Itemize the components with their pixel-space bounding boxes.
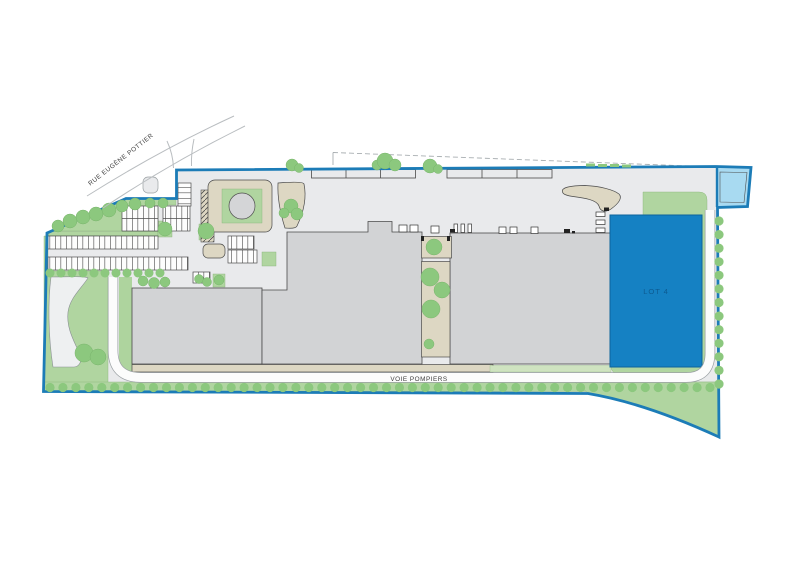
green-island	[262, 252, 276, 266]
bush	[714, 298, 723, 307]
bush	[421, 383, 430, 392]
bush	[524, 383, 533, 392]
bush	[714, 284, 723, 293]
bush	[680, 383, 689, 392]
bush	[628, 383, 637, 392]
bush	[550, 383, 559, 392]
bush	[134, 269, 143, 278]
bush	[136, 383, 145, 392]
bush	[145, 269, 154, 278]
bush	[576, 383, 585, 392]
bush	[278, 383, 287, 392]
bush	[343, 383, 352, 392]
bush	[330, 383, 339, 392]
bush	[641, 383, 650, 392]
tank-pad-foot	[203, 244, 225, 258]
bush	[714, 230, 723, 239]
bush	[511, 383, 520, 392]
bush	[714, 312, 723, 321]
bush	[408, 383, 417, 392]
bush	[369, 383, 378, 392]
bush	[57, 269, 66, 278]
bush	[714, 339, 723, 348]
bush	[714, 271, 723, 280]
bush	[434, 383, 443, 392]
bush	[240, 383, 249, 392]
bush	[84, 383, 93, 392]
bush	[253, 383, 262, 392]
bush	[45, 383, 54, 392]
bush	[356, 383, 365, 392]
bush	[110, 383, 119, 392]
bush	[589, 383, 598, 392]
parking-row	[228, 250, 257, 263]
bush	[563, 383, 572, 392]
bush	[714, 379, 723, 388]
bush	[265, 383, 274, 392]
site-plan: RUE EUGÈNE POTTIER VOIE POMPIERS LOT 4	[0, 0, 800, 569]
parking-row	[48, 257, 188, 270]
bush	[112, 269, 121, 278]
dock-apron	[132, 365, 493, 373]
building-left	[132, 288, 262, 364]
bush	[156, 269, 165, 278]
bush	[123, 269, 132, 278]
parking-row	[48, 236, 158, 249]
bush	[654, 383, 663, 392]
bush	[149, 383, 158, 392]
bush	[188, 383, 197, 392]
bush	[68, 269, 77, 278]
apron-strip	[490, 366, 611, 373]
bush	[71, 383, 80, 392]
fire-lane-label: VOIE POMPIERS	[390, 376, 447, 383]
bush	[447, 383, 456, 392]
bush	[79, 269, 88, 278]
tank-circle	[229, 193, 255, 219]
bush	[201, 383, 210, 392]
lot4-label: LOT 4	[643, 287, 668, 296]
bush	[473, 383, 482, 392]
bush	[714, 216, 723, 225]
curb-island	[143, 177, 158, 193]
bush	[175, 383, 184, 392]
bush	[714, 352, 723, 361]
parking-row	[228, 236, 254, 249]
bush	[705, 383, 714, 392]
bush	[382, 383, 391, 392]
bush	[714, 325, 723, 334]
bush	[714, 366, 723, 375]
bush	[693, 383, 702, 392]
bush	[97, 383, 106, 392]
bush	[214, 383, 223, 392]
courtyard	[421, 236, 452, 357]
bush	[460, 383, 469, 392]
bush	[162, 383, 171, 392]
parking-row	[178, 183, 191, 206]
bush	[90, 269, 99, 278]
bush	[291, 383, 300, 392]
bush	[123, 383, 132, 392]
basin	[717, 168, 751, 206]
bush	[227, 383, 236, 392]
bush	[602, 383, 611, 392]
bush	[58, 383, 67, 392]
bush	[317, 383, 326, 392]
bush	[46, 269, 55, 278]
green-band	[119, 277, 132, 362]
bush	[615, 383, 624, 392]
bush	[304, 383, 313, 392]
bush	[101, 269, 110, 278]
bush	[395, 383, 404, 392]
bush	[485, 383, 494, 392]
bush	[498, 383, 507, 392]
bush	[714, 257, 723, 266]
bush	[714, 244, 723, 253]
site-plan-canvas: RUE EUGÈNE POTTIER VOIE POMPIERS LOT 4	[0, 0, 800, 569]
building-right	[450, 233, 610, 364]
bush	[667, 383, 676, 392]
green-strip	[48, 232, 158, 236]
bush	[537, 383, 546, 392]
